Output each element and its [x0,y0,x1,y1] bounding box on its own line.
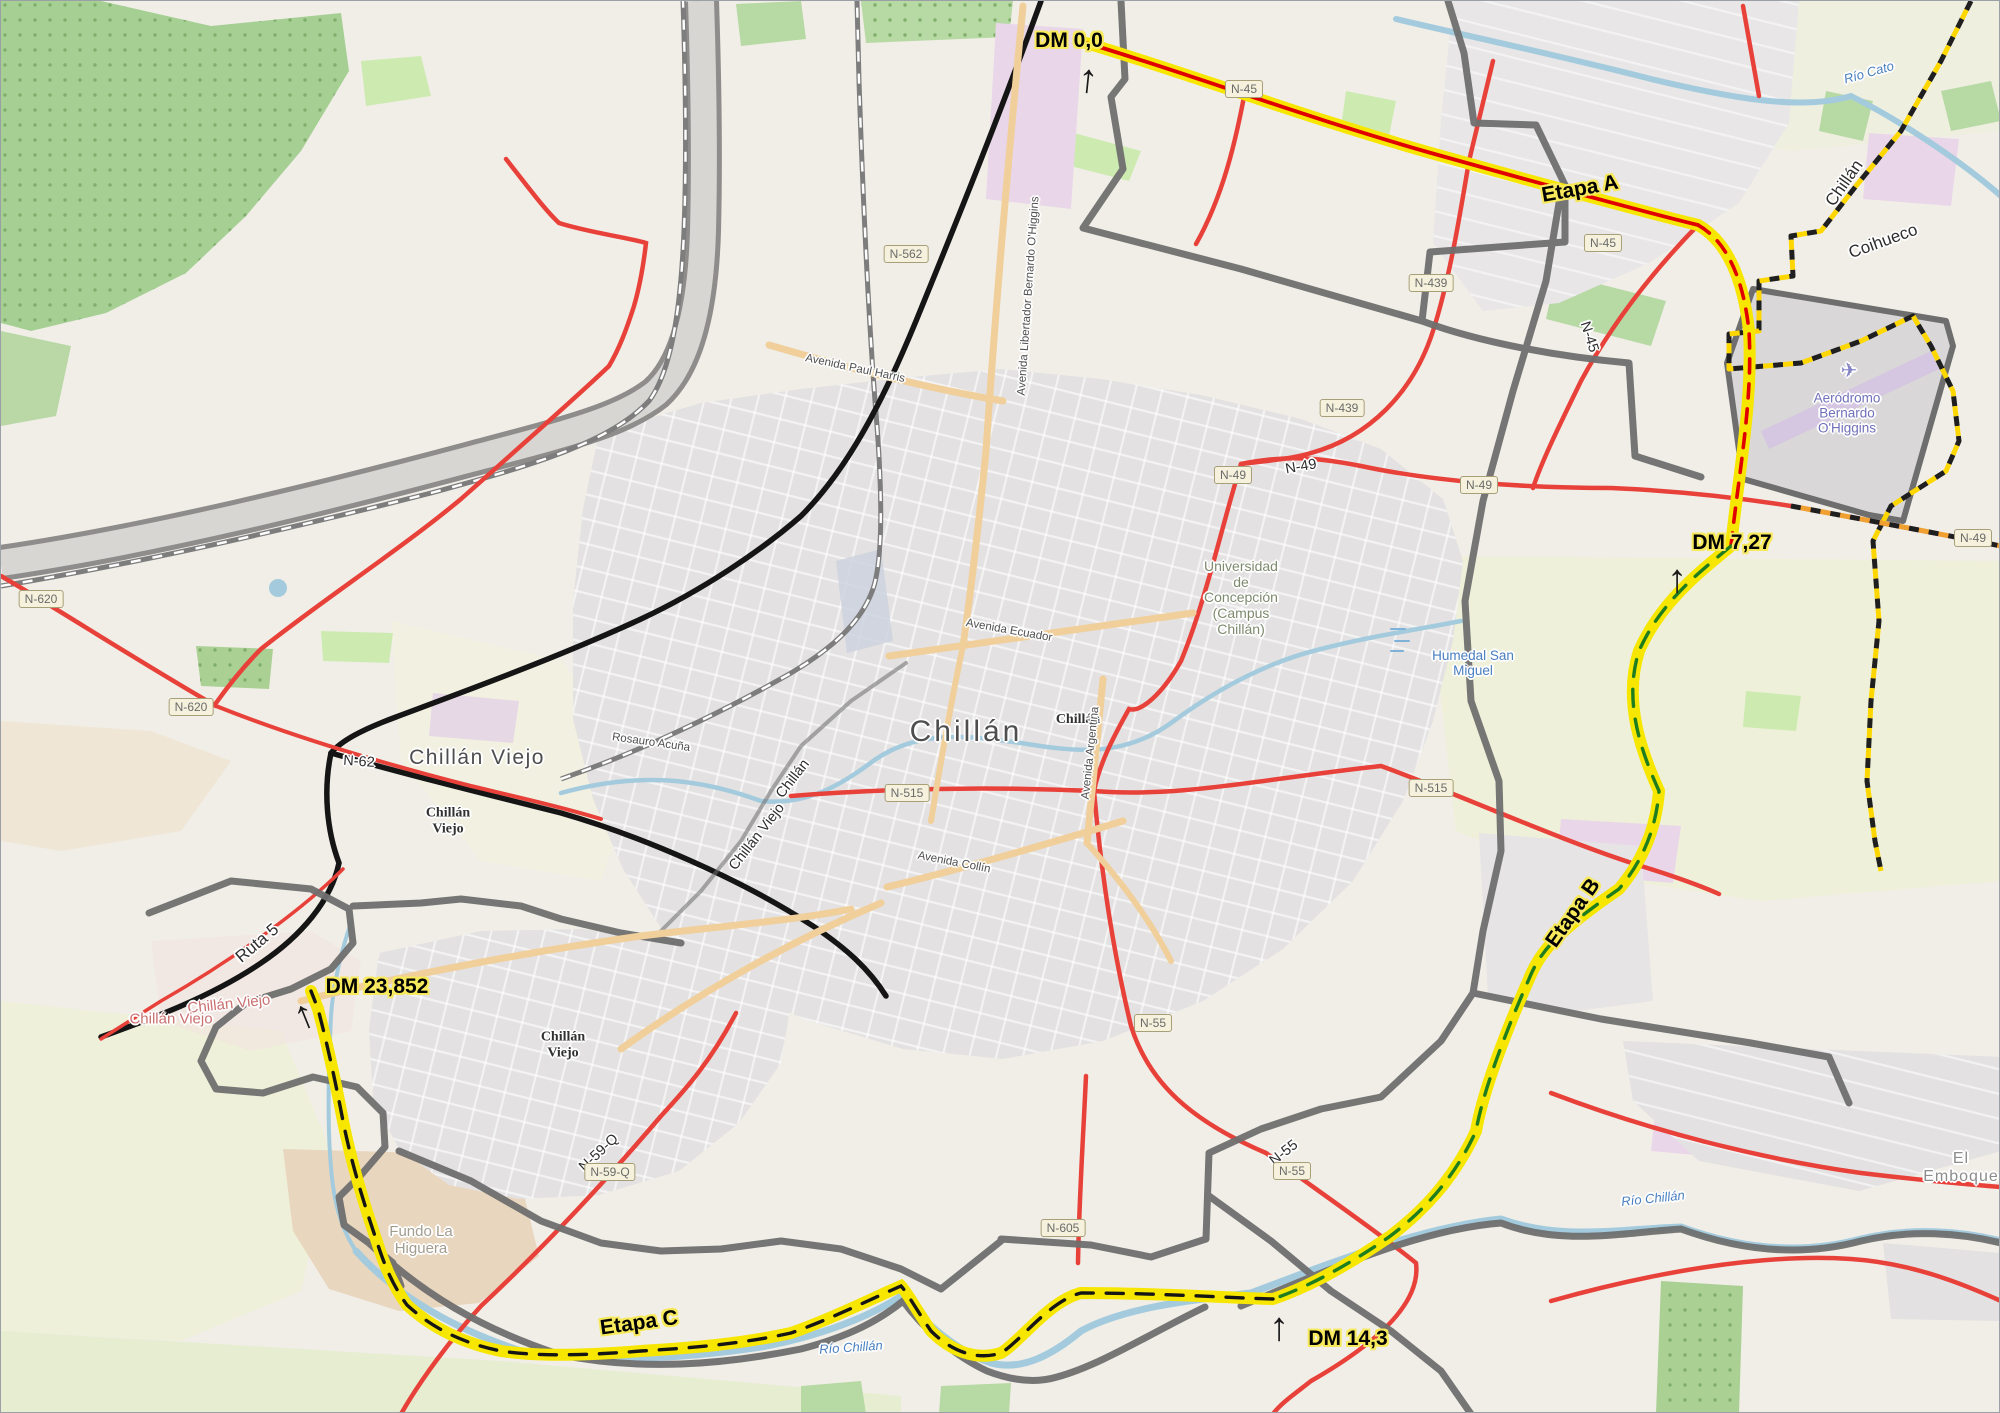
basemap [1,1,2000,1413]
map-canvas[interactable]: DM 0,0DM 7,27DM 14,3DM 23,852Etapa AEtap… [0,0,2000,1413]
